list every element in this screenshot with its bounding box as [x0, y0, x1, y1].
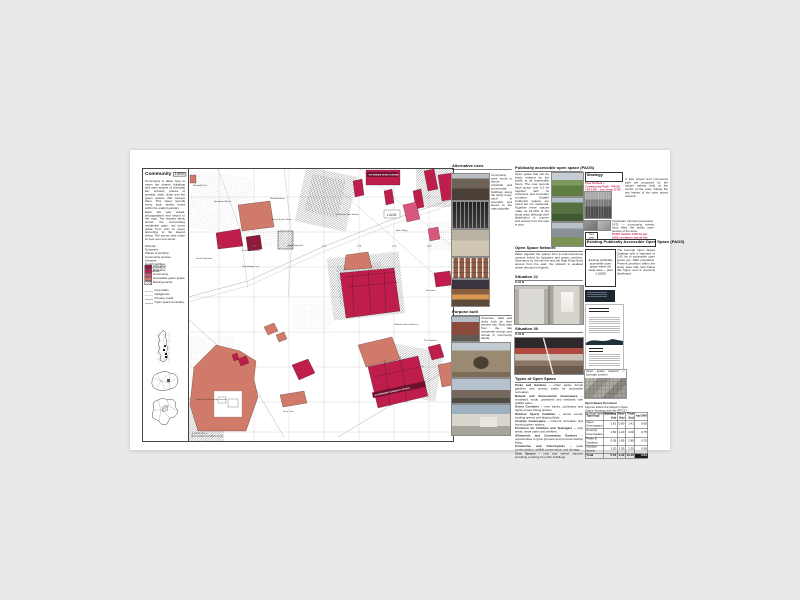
thumb-caption: Open space network — borough context — [586, 370, 625, 377]
scale-box: 1:5000 — [173, 172, 186, 176]
th-total: Total (ha) — [625, 412, 635, 420]
photo-bw-carnival — [585, 192, 611, 218]
table-row: Parks & Gardens0.95 1.852.80 0.70 — [585, 437, 648, 445]
network-text: Taken together the spaces form a near-co… — [515, 253, 583, 270]
area-ref-label: LA16 — [387, 212, 397, 217]
scale-bar-label: 0 100 200 300 m — [192, 433, 207, 435]
banner-label: TOTTENHAM SPORTS CENTRE — [369, 174, 400, 177]
situation-21-heading: Situation 21 — [515, 275, 583, 281]
map-label: 279 — [392, 244, 397, 248]
doc-wave-graphic — [586, 335, 623, 345]
doc-heading-lines — [589, 308, 609, 314]
desktop-background: Community 1:5000 Community is taken here… — [0, 0, 800, 600]
presentation-sheet: Community 1:5000 Community is taken here… — [130, 150, 670, 450]
open-space-table-wrap: Typology Existing (ha) New (ha) Total (h… — [585, 412, 630, 432]
photo-bw-small-1 — [585, 221, 597, 230]
thumb-caption-strip: Open space network — borough context — [586, 370, 625, 378]
photo-red-brick-corner — [452, 317, 479, 341]
strategy-text-block: A free school and community park are pro… — [625, 178, 668, 218]
legend-swatch — [145, 266, 152, 269]
intro-text: Each site was visited, photographed and … — [145, 211, 185, 241]
area-ref-box: LA16 — [384, 210, 400, 218]
table-row: Outdoor Sports1.20 1.052.25 0.56 — [585, 445, 648, 453]
map-label: Hale Village — [396, 230, 408, 232]
map-label: 280 — [427, 244, 432, 248]
list-item: Cemeteries and Churchyards – quiet conte… — [515, 445, 583, 452]
map-label: 276 — [287, 244, 292, 248]
paos-bar-heading: Existing Publically Accessible Open Spac… — [586, 240, 655, 245]
column-found-uses: Alternative uses Community uses found in… — [452, 164, 512, 440]
strategy-red-text: Free School + Community Park · PAOS +24.… — [585, 182, 621, 192]
th-new: New (ha) — [617, 412, 625, 420]
map-label: 277 — [322, 244, 327, 248]
note-text: Community uses found in former industria… — [491, 174, 512, 211]
carnival-caption: Tottenham carnival procession, 1971 — co… — [612, 220, 654, 233]
list-item: Outdoor Sports Facilities – tennis court… — [515, 413, 583, 420]
legend-label: Burial grounds — [153, 281, 172, 285]
list-item: Amenity Greenspace – informal recreation… — [515, 420, 583, 427]
paos-text: Open space that can be freely entered by… — [515, 173, 549, 227]
standard-text: The borough Open Space Strategy sets a s… — [617, 249, 655, 276]
types-heading: Types of Open Space — [515, 377, 583, 383]
legend-swatch — [145, 274, 152, 277]
photo-trees — [552, 198, 583, 221]
photo-street-tower — [452, 379, 510, 403]
report-cover-thumbnail — [585, 290, 615, 302]
map-label: South Tottenham — [196, 257, 213, 260]
situation-21-ref: S-31 B — [515, 281, 549, 284]
map-label: 278 — [357, 244, 362, 248]
strategy-text: A free school and community park are pro… — [625, 178, 668, 198]
photo-boxing-gym — [515, 338, 583, 374]
thumb-image — [585, 378, 626, 398]
photo-beige-wall-sign — [452, 230, 489, 256]
doc-subheading-lines — [589, 348, 603, 352]
photo-park-green — [552, 173, 583, 196]
paos-plan-caption: Existing publically accessible open spac… — [588, 259, 613, 276]
photo-underpass-dusk — [452, 280, 489, 306]
photo-dark-building-windows — [452, 202, 489, 228]
list-item: Parks and Gardens – urban parks, formal … — [515, 384, 583, 395]
map-panel: Community 1:5000 Community is taken here… — [142, 168, 454, 442]
map-label: Paddock Nature Reserve — [394, 323, 419, 326]
map-label: 275 — [252, 244, 257, 248]
legend-line-sample — [145, 299, 153, 300]
site-map: TOTTENHAM SPORTS CENTRE GLADESMORE COMMU… — [188, 169, 453, 441]
map-sidebar: Community 1:5000 Community is taken here… — [143, 169, 189, 441]
strategy-box: Strategy — [585, 172, 623, 182]
map-label: Markfield Road — [270, 197, 285, 200]
legend-line-sample — [145, 295, 153, 296]
map-label: Seven Sisters Road — [272, 218, 292, 221]
photo-brick-terrace — [452, 258, 489, 278]
map-label: The Paddock — [424, 340, 438, 342]
column-a-heading-2: Purpose built — [452, 310, 512, 316]
photo-door-plain — [515, 286, 548, 324]
legend-swatch-rows: EducationReligiousCommunityAccessible gr… — [145, 265, 187, 285]
th-ratio: ha/1000 — [635, 412, 648, 420]
photo-door-notice — [550, 286, 583, 324]
th-typology: Typology — [585, 412, 603, 420]
map-label: St Ignatius Church — [242, 249, 261, 252]
list-item: Civic Spaces – civic and market squares … — [515, 452, 583, 459]
table-title: Open Space Provision — [585, 402, 615, 405]
context-map-thumbnail: Open space network — borough context — [585, 370, 626, 398]
strategy-heading: Strategy — [586, 173, 622, 178]
types-items: Parks and Gardens – urban parks, formal … — [515, 384, 583, 459]
paos-plan-box: Existing publically accessible open spac… — [585, 249, 616, 287]
situation-30-heading: Situation 30 — [515, 327, 583, 333]
list-item: Burial grounds — [145, 281, 187, 285]
legend-line-rows: Foot pathsHedgerowsPrimary roadsOpen spa… — [145, 289, 187, 305]
legend-line-sample — [145, 303, 153, 304]
list-item: Open space boundary — [145, 301, 187, 305]
table-row: Open Greenspace1.61 0.802.41 0.60 — [585, 421, 648, 429]
report-cover-lines — [587, 292, 607, 298]
doc-body-lines-2 — [589, 354, 620, 366]
map-label: Down Lane Recreation Ground — [196, 398, 227, 401]
column-a-heading: Alternative uses — [452, 164, 512, 170]
photo-church-facade — [452, 343, 510, 377]
legend-swatch — [145, 270, 152, 273]
table-row: Amenity Greenspace1.80 1.203.00 0.75 — [585, 429, 648, 437]
legend-swatch — [145, 278, 152, 281]
map-label: Ferry Lane — [283, 410, 294, 413]
photo-housing-green — [552, 223, 583, 246]
list-item: Allotments and Community Gardens – oppor… — [515, 434, 583, 445]
map-banner-top: TOTTENHAM SPORTS CENTRE — [367, 172, 399, 177]
map-label: Springfield Marsh — [214, 200, 232, 203]
uk-locator-map — [153, 329, 175, 365]
london-locator-map — [149, 369, 181, 393]
map-label: Reservoir — [426, 289, 436, 292]
network-heading: Open Space Network — [515, 246, 583, 252]
photo-brick-warehouse — [452, 174, 489, 200]
map-label: Tottenham Hale Station — [336, 213, 360, 216]
policy-document-thumbnail — [585, 304, 624, 370]
map-label: Stonebridge Lock — [242, 265, 260, 268]
map-label: Markfield Park — [193, 184, 208, 187]
th-existing: Existing (ha) — [604, 412, 618, 420]
situation-30-ref: S-31 B — [515, 333, 549, 336]
map-label: 274 — [218, 244, 223, 248]
table-header-row: Typology Existing (ha) New (ha) Total (h… — [585, 412, 648, 420]
list-item: Provision for Children and Teenagers – p… — [515, 427, 583, 434]
types-list: Parks and Gardens – urban parks, formal … — [515, 384, 583, 535]
legend-line-sample — [145, 291, 153, 292]
standard-text-block: The borough Open Space Strategy sets a s… — [617, 249, 655, 303]
title-block: Community 1:5000 — [145, 171, 187, 178]
borough-locator-map — [149, 397, 181, 427]
column-open-space: Publically accessible open space (PAOS) … — [515, 164, 583, 440]
legend-swatch — [145, 282, 152, 285]
paos-bar: Existing Publically Accessible Open Spac… — [585, 239, 656, 247]
paos-heading: Publically accessible open space (PAOS) — [515, 166, 583, 172]
list-item: Natural and Semi-natural Greenspace – wo… — [515, 395, 583, 406]
legend-lines: Foot pathsHedgerowsPrimary roadsOpen spa… — [145, 289, 187, 321]
legend-label: Open space boundary — [155, 301, 185, 305]
table-total-row: Total5.56 4.9010.46 2.61 — [585, 454, 648, 458]
sheet-title: Community — [145, 171, 170, 176]
intro-text: Community is taken here to mean the shar… — [145, 180, 185, 210]
photo-bw-small-2 — [598, 221, 610, 230]
column-strategy: Strategy A free school and community par… — [585, 164, 668, 440]
list-item: Green Corridors – river banks, cycleways… — [515, 406, 583, 413]
doc-body-lines — [589, 317, 620, 333]
open-space-table: Typology Existing (ha) New (ha) Total (h… — [585, 412, 648, 458]
note-text: Churches, halls and clubs built for thei… — [481, 317, 512, 341]
photo-white-hall-van — [452, 405, 510, 435]
column-a-note: Community uses found in former industria… — [491, 174, 512, 248]
